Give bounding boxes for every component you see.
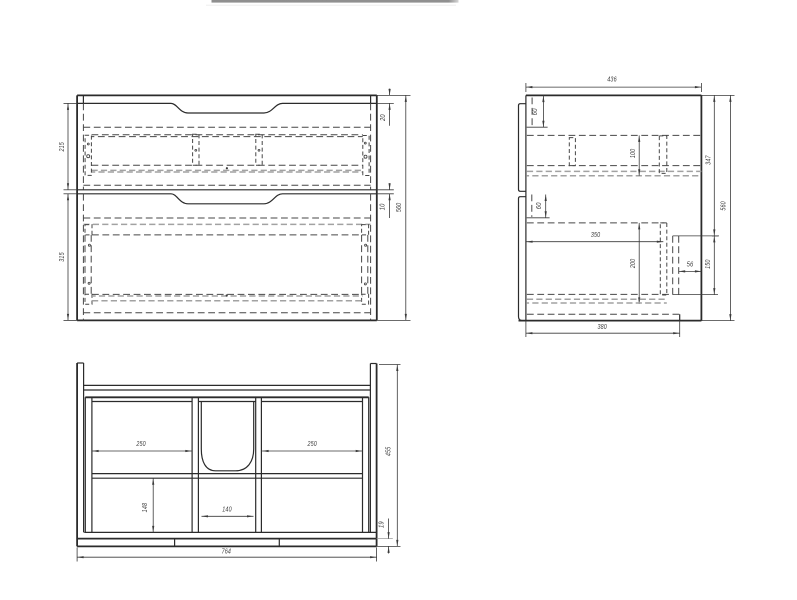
svg-text:560: 560	[721, 201, 728, 210]
svg-text:380: 380	[597, 324, 606, 331]
svg-text:60: 60	[536, 202, 543, 209]
svg-text:20: 20	[380, 114, 387, 122]
svg-text:436: 436	[607, 77, 616, 84]
svg-text:250: 250	[307, 441, 317, 448]
svg-text:60: 60	[532, 108, 539, 115]
svg-text:100: 100	[630, 149, 637, 158]
svg-text:200: 200	[630, 259, 637, 269]
svg-text:560: 560	[396, 203, 403, 212]
svg-text:315: 315	[59, 252, 66, 261]
svg-text:250: 250	[136, 441, 146, 448]
svg-text:347: 347	[705, 155, 712, 165]
svg-text:215: 215	[59, 142, 66, 152]
svg-text:10: 10	[380, 204, 387, 211]
svg-text:148: 148	[142, 503, 149, 512]
svg-text:350: 350	[591, 232, 600, 239]
svg-text:455: 455	[386, 447, 393, 456]
svg-text:56: 56	[687, 262, 694, 269]
svg-text:19: 19	[379, 521, 386, 528]
svg-text:140: 140	[222, 506, 231, 513]
svg-text:764: 764	[222, 548, 231, 555]
svg-text:150: 150	[705, 259, 712, 268]
